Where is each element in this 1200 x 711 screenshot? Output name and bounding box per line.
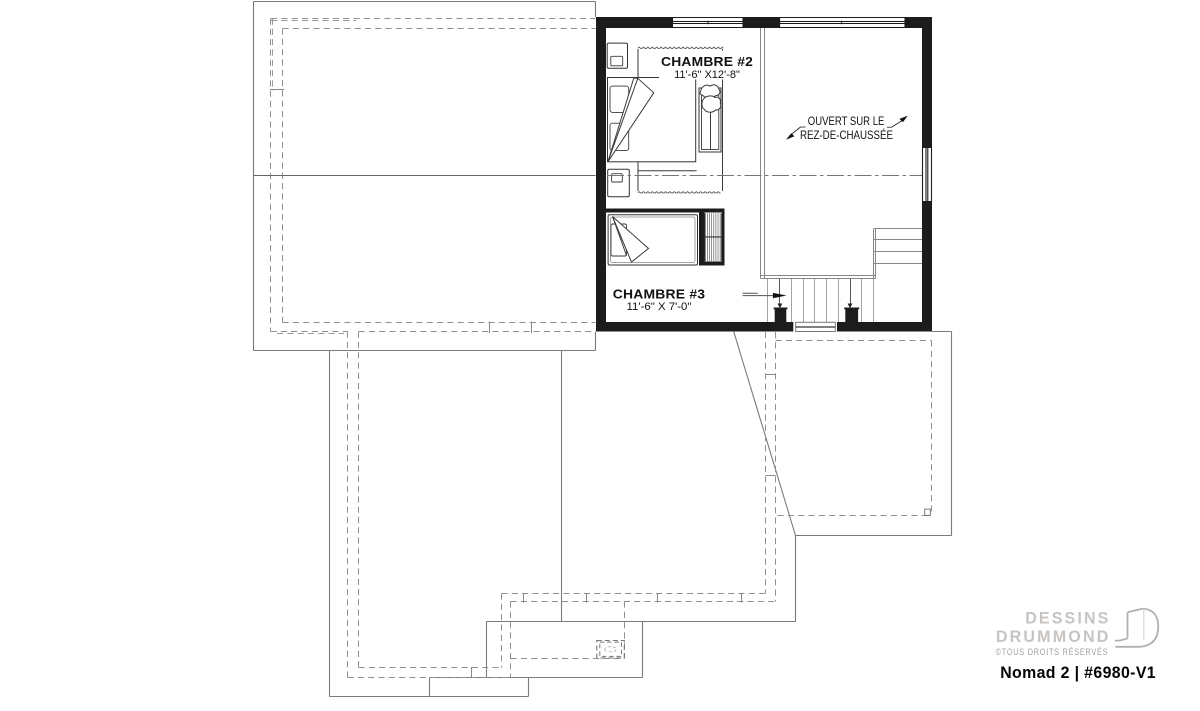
svg-text:DRUMMOND: DRUMMOND <box>996 628 1111 646</box>
svg-text:©TOUS DROITS RÉSERVÉS: ©TOUS DROITS RÉSERVÉS <box>996 647 1109 657</box>
svg-text:REZ-DE-CHAUSSÉE: REZ-DE-CHAUSSÉE <box>800 128 893 142</box>
svg-text:Nomad 2 | #6980-V1: Nomad 2 | #6980-V1 <box>1000 663 1156 682</box>
svg-text:CHAMBRE #2: CHAMBRE #2 <box>661 54 753 69</box>
svg-text:11'-6" X 7'-0": 11'-6" X 7'-0" <box>627 301 692 313</box>
svg-text:11'-6" X12'-8": 11'-6" X12'-8" <box>674 69 740 81</box>
svg-text:DESSINS: DESSINS <box>1025 610 1110 628</box>
svg-text:OUVERT SUR LE: OUVERT SUR LE <box>808 114 885 128</box>
svg-text:CHAMBRE #3: CHAMBRE #3 <box>613 286 706 301</box>
